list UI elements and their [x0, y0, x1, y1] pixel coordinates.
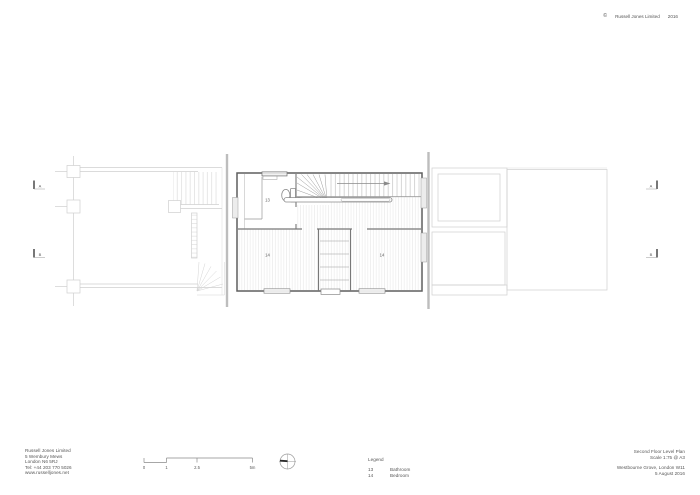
svg-text:A: A — [39, 183, 42, 188]
firm-name: Russell Jones Limited — [25, 448, 72, 454]
section-marker-b-right: B — [646, 249, 657, 258]
section-marker-a-left: A — [34, 181, 45, 190]
svg-text:B: B — [39, 252, 42, 257]
drawing-date: 5 August 2016 — [617, 471, 685, 477]
rooflight — [262, 172, 287, 176]
stair-treads — [330, 174, 421, 197]
section-marker-a-right: A — [646, 181, 657, 190]
svg-text:1: 1 — [165, 465, 168, 470]
title-block: Second Floor Level Plan Scale 1:75 @ A3 … — [617, 449, 685, 476]
north-arrow-icon — [279, 454, 296, 469]
svg-text:5m: 5m — [250, 465, 256, 470]
left-neighbour-plan — [55, 156, 225, 306]
legend-heading: Legend — [368, 457, 410, 463]
legend-item-number: 14 — [368, 473, 390, 479]
scale-bar: 0 1 2.5 5m — [143, 458, 256, 470]
room-label-bathroom: 13 — [265, 198, 270, 203]
firm-address-block: Russell Jones Limited 5 Wembury Mews Lon… — [25, 448, 72, 476]
legend: Legend 13 Bathroom 14 Bedroom — [368, 457, 410, 478]
svg-text:A: A — [650, 183, 653, 188]
svg-text:0: 0 — [143, 465, 146, 470]
floor-plan-drawing: 13 14 14 A B — [0, 0, 700, 495]
drawing-sheet: © Russell Jones Limited 2016 — [0, 0, 700, 495]
legend-item-label: Bedroom — [390, 473, 409, 479]
section-marker-b-left: B — [34, 249, 45, 258]
room-label-bedroom-left: 14 — [265, 253, 270, 258]
neighbour-winder — [197, 262, 225, 295]
main-building-plan: 13 14 14 — [233, 172, 427, 295]
right-neighbour-plan — [432, 168, 607, 295]
svg-text:2.5: 2.5 — [194, 465, 200, 470]
legend-item: 14 Bedroom — [368, 473, 410, 479]
firm-website: www.russelljones.net — [25, 470, 72, 476]
drawing-scale: Scale 1:75 @ A3 — [617, 455, 685, 461]
svg-text:B: B — [650, 252, 653, 257]
neighbour-stair — [169, 172, 225, 295]
room-label-bedroom-right: 14 — [380, 253, 385, 258]
project-name: Westbourne Grove, London W11 — [617, 465, 685, 471]
